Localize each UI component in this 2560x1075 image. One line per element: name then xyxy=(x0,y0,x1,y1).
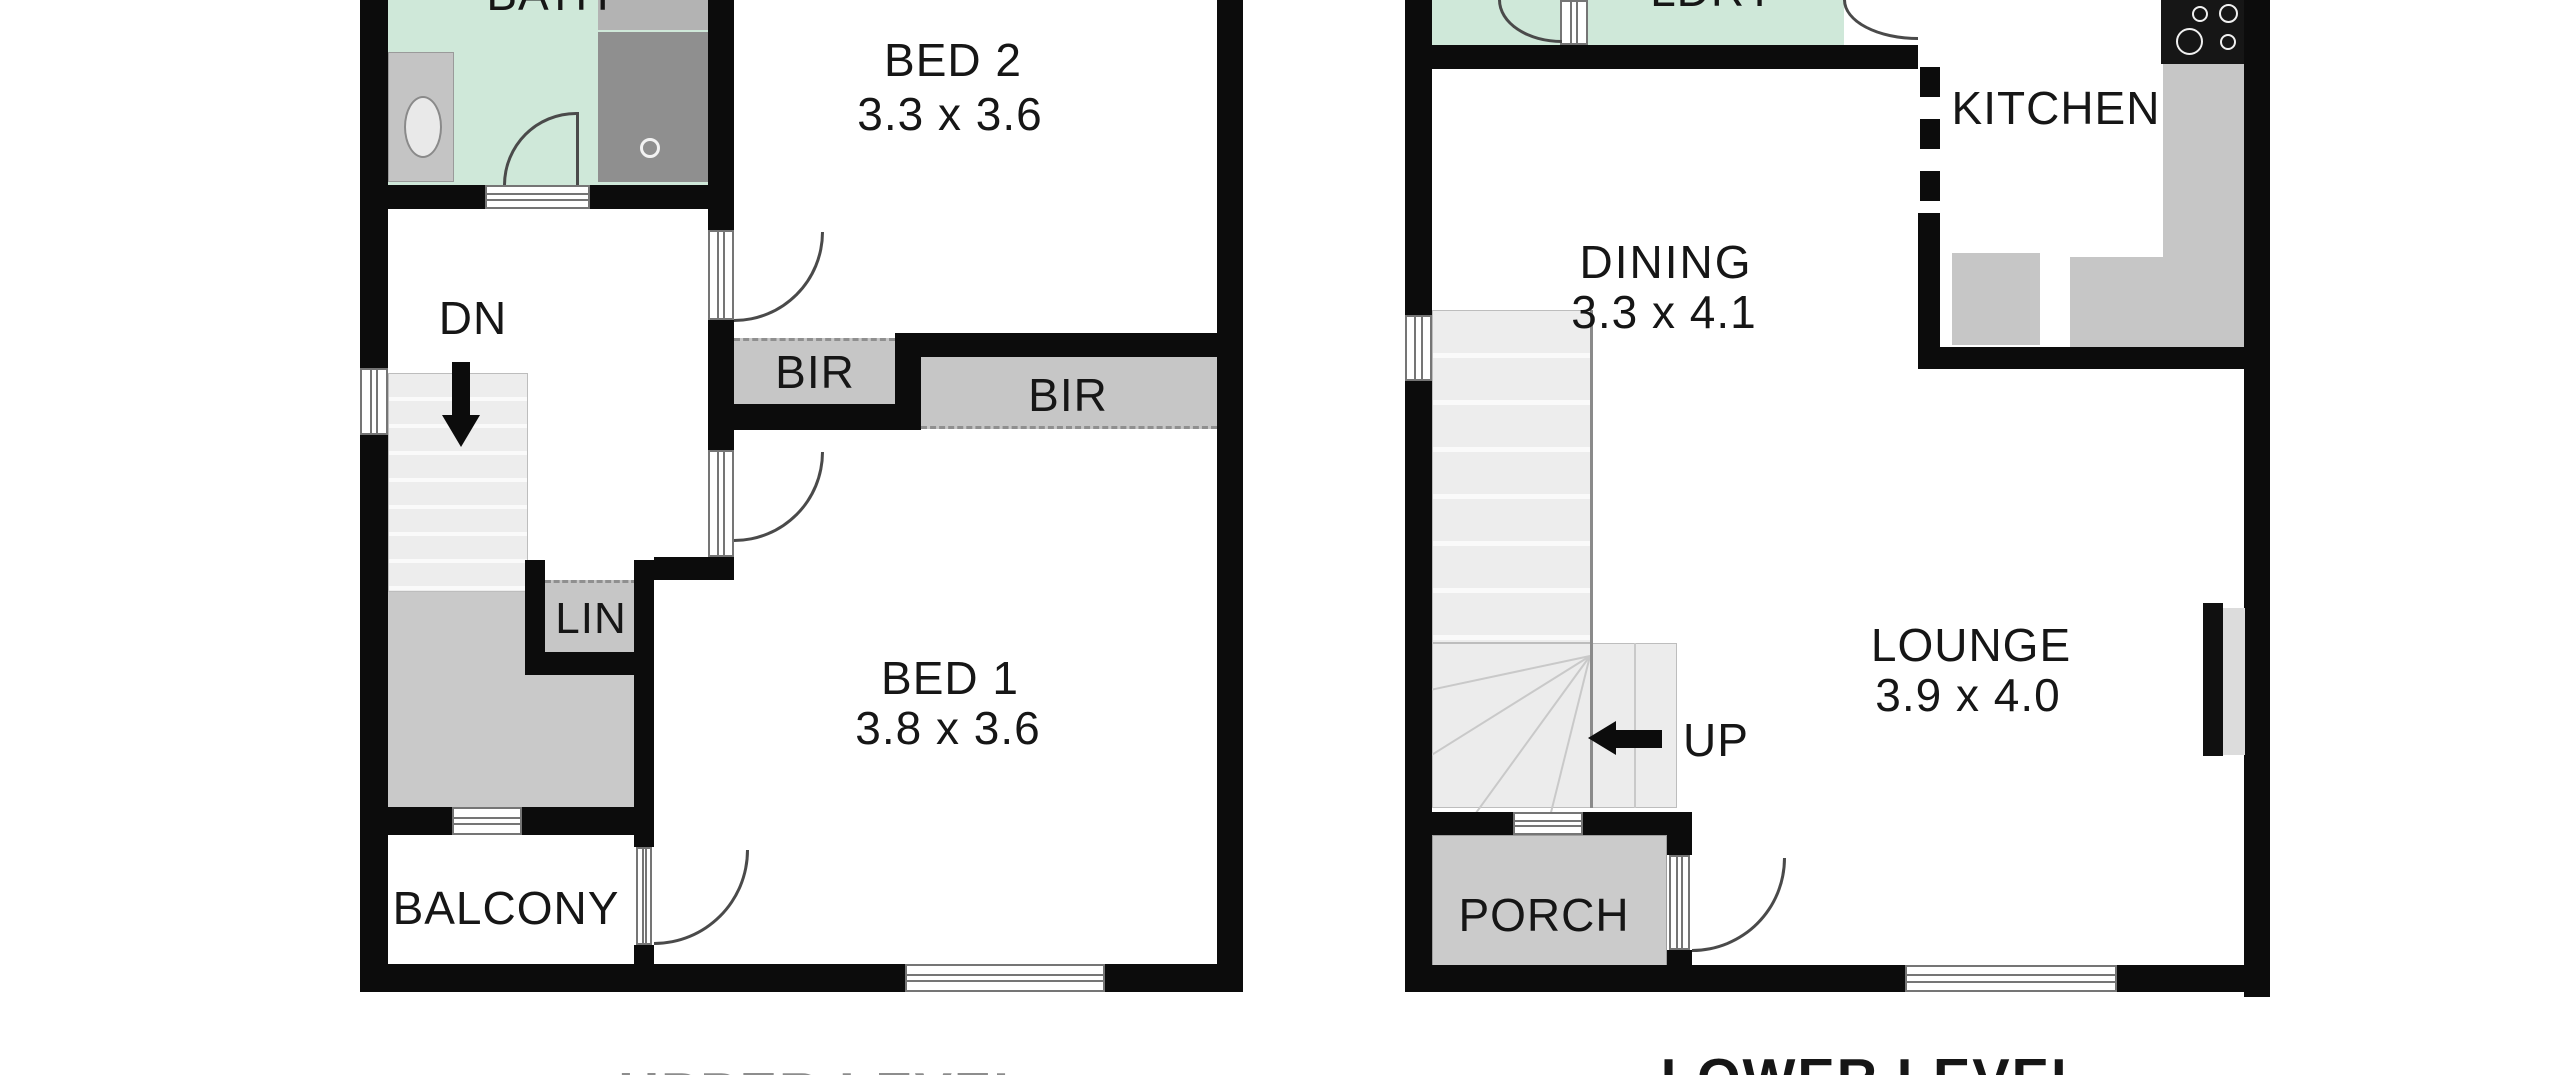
front-door-arc xyxy=(1692,858,1786,952)
wall-lower-bottom-a xyxy=(1405,965,1905,992)
window-upper-left-wall xyxy=(360,368,388,435)
wall-porch-right-a xyxy=(1667,835,1692,855)
stair-landing-lower xyxy=(388,675,634,807)
wall-bed2-left-a xyxy=(708,0,734,230)
dn-arrow-head xyxy=(442,415,480,447)
wall-kitchen-left xyxy=(1918,213,1940,347)
wall-lower-bottom-b xyxy=(2117,965,2270,992)
kitchen-label: KITCHEN xyxy=(1952,81,2161,135)
up-label: UP xyxy=(1683,713,1749,767)
cooktop-burner-1 xyxy=(2192,6,2208,22)
laundry-floor xyxy=(1432,0,1844,45)
bed1-door-jamb xyxy=(708,450,734,557)
tv-shadow xyxy=(2223,608,2245,755)
wall-upper-bottom xyxy=(360,964,1243,992)
wall-laundry-bottom xyxy=(1405,45,1918,69)
laundry-door-arc-2 xyxy=(1843,0,1918,40)
wall-bed2-bottom xyxy=(895,333,1243,357)
bath-door-leaf xyxy=(576,112,579,185)
kitchen-counter-bottom xyxy=(2070,257,2163,347)
cooktop-burner-4 xyxy=(2220,34,2236,50)
window-lounge-bottom xyxy=(1905,965,2117,992)
stairs-lower-straight xyxy=(1432,310,1592,643)
wall-lower-left xyxy=(1405,0,1432,992)
window-balcony-wall xyxy=(452,807,522,835)
cooktop-burner-2 xyxy=(2219,4,2238,23)
balcony-door-arc xyxy=(654,850,749,945)
window-porch-wall xyxy=(1513,812,1583,835)
wall-bath-bottom-b xyxy=(590,185,708,209)
wall-bath-bottom-a xyxy=(360,185,485,209)
bed2-label: BED 2 xyxy=(884,33,1022,87)
bed1-dims: 3.8 x 3.6 xyxy=(855,701,1040,755)
kitchen-island xyxy=(1952,253,2040,345)
upper-level-title: UPPER LEVEL xyxy=(619,1060,1030,1075)
wall-kitchen-bottom xyxy=(1918,347,2270,369)
wall-upper-left xyxy=(360,0,388,992)
dining-dims: 3.3 x 4.1 xyxy=(1571,285,1756,339)
bir1-label: BIR xyxy=(775,345,855,399)
wall-upper-right xyxy=(1217,0,1243,992)
window-bed1-bottom xyxy=(905,964,1105,992)
bir2-label: BIR xyxy=(1028,368,1108,422)
stair-landing xyxy=(388,592,525,675)
wall-hall-bed1-link xyxy=(654,557,734,580)
laundry-label: LDRY xyxy=(1650,0,1776,17)
lin-label: LIN xyxy=(555,594,626,644)
wall-bed2-left-b xyxy=(708,320,734,450)
wall-lower-right xyxy=(2244,0,2270,997)
bath-sink xyxy=(404,96,442,158)
wall-below-bir xyxy=(708,404,921,430)
balcony-label: BALCONY xyxy=(393,881,620,935)
wall-bed1-left xyxy=(634,560,654,847)
winder-divider xyxy=(1634,643,1636,808)
window-lower-left-wall xyxy=(1405,315,1432,381)
dining-label: DINING xyxy=(1580,235,1753,289)
up-arrow-shaft xyxy=(1614,730,1662,748)
bed2-door-arc xyxy=(734,232,824,322)
bed1-door-arc xyxy=(734,452,824,542)
tv-unit xyxy=(2203,603,2223,756)
wall-bed1-left-lower xyxy=(634,945,654,992)
bed2-door-jamb xyxy=(708,230,734,320)
bed2-dims: 3.3 x 3.6 xyxy=(857,87,1042,141)
laundry-door-jamb xyxy=(1560,0,1588,45)
up-arrow-head xyxy=(1588,721,1616,755)
balcony-door-jamb xyxy=(636,847,652,945)
floor-plan-stage: BATH BED 2 3.3 x 3.6 DN BIR BIR LIN BED … xyxy=(0,0,2560,1075)
bed1-label: BED 1 xyxy=(881,651,1019,705)
lounge-label: LOUNGE xyxy=(1871,618,2071,672)
cooktop-burner-3 xyxy=(2176,28,2203,55)
lower-level-title: LOWER LEVEL xyxy=(1661,1046,2087,1075)
bath-label: BATH xyxy=(486,0,609,21)
shower xyxy=(598,32,708,182)
bath-door-jamb xyxy=(485,185,590,209)
porch-label: PORCH xyxy=(1458,888,1629,942)
kitchen-open-divider xyxy=(1920,67,1940,213)
lounge-dims: 3.9 x 4.0 xyxy=(1875,668,2060,722)
shower-head-icon xyxy=(640,138,660,158)
stairs-lower-winder xyxy=(1432,643,1677,808)
dn-label: DN xyxy=(439,291,507,345)
dn-arrow-shaft xyxy=(452,362,470,417)
toilet-cistern xyxy=(598,0,708,30)
front-door-jamb xyxy=(1669,855,1690,950)
